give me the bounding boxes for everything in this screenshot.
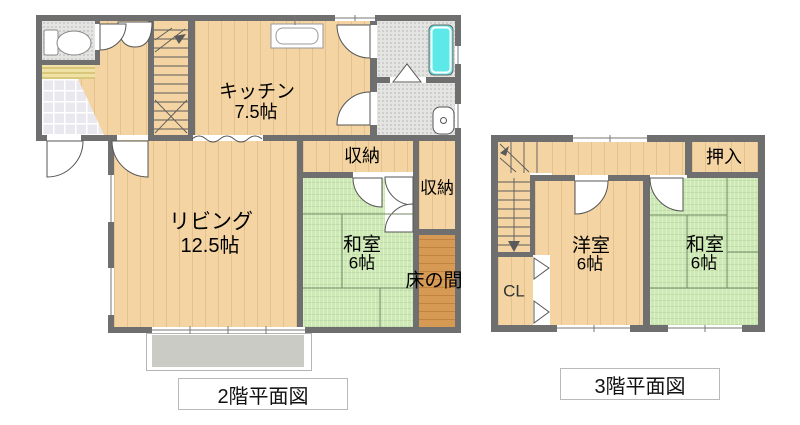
door-opening <box>575 175 608 181</box>
door-opening <box>370 92 377 125</box>
washitsu-2f-size: 6帖 <box>349 255 375 272</box>
closet-door-strip <box>533 255 550 325</box>
wall <box>530 181 535 252</box>
storage-top-label: 収納 <box>344 147 380 165</box>
wall <box>263 135 461 141</box>
window <box>152 327 305 333</box>
door-opening <box>370 25 377 58</box>
washitsu-2f-label: 和室 <box>343 236 381 255</box>
closet-label: CL <box>503 283 525 300</box>
washitsu-3f-size: 6帖 <box>691 255 717 272</box>
living-label: リビング <box>169 212 253 233</box>
wall <box>413 140 419 232</box>
staircase-2f <box>154 21 188 135</box>
wall <box>303 172 353 178</box>
living-size: 12.5帖 <box>181 236 240 256</box>
wall <box>188 21 195 135</box>
wall <box>148 135 193 141</box>
floor2-caption-text: 2階平面図 <box>217 380 308 409</box>
western-room-size: 6帖 <box>577 256 603 273</box>
kitchen-floor <box>195 21 370 135</box>
window <box>335 15 375 21</box>
bath-mat <box>42 64 95 79</box>
wall <box>36 135 47 141</box>
wall <box>643 175 650 325</box>
bathroom-floor <box>377 21 455 77</box>
wall <box>758 135 765 332</box>
wall <box>491 135 498 332</box>
window <box>455 104 461 128</box>
wall <box>36 15 42 141</box>
floor-plan-page: キッチン 7.5帖 リビング 12.5帖 収納 収納 和室 6帖 床の間 洋室 … <box>0 0 800 425</box>
floor3-caption: 3階平面図 <box>560 368 720 400</box>
wall <box>297 135 303 333</box>
storage-side-label: 収納 <box>420 180 454 197</box>
window <box>668 325 742 332</box>
balcony-floor <box>152 335 304 367</box>
double-door-notch <box>385 172 413 232</box>
staircase-3f-landing <box>498 142 552 173</box>
floor2-caption: 2階平面図 <box>178 378 348 410</box>
staircase-3f-run <box>498 173 530 253</box>
wall <box>687 172 758 178</box>
window <box>557 325 630 332</box>
window <box>573 135 647 142</box>
wall <box>491 252 535 257</box>
kitchen-size: 7.5帖 <box>234 103 277 121</box>
wall <box>685 142 692 175</box>
door-opening <box>390 77 426 83</box>
wall <box>81 135 117 141</box>
wall <box>413 229 461 235</box>
toilet-room-floor <box>42 21 95 60</box>
living-floor <box>114 140 297 327</box>
lavatory-floor <box>377 83 455 135</box>
kitchen-label: キッチン <box>219 83 295 102</box>
window <box>108 268 114 315</box>
tokonoma-label: 床の間 <box>405 272 462 291</box>
oshiire-label: 押入 <box>706 148 742 166</box>
washitsu-3f-label: 和室 <box>686 236 724 255</box>
wall <box>148 21 154 135</box>
door-arc <box>47 141 83 177</box>
wall <box>36 60 100 65</box>
door-opening <box>95 24 100 50</box>
hallway-floor-3f <box>552 142 692 175</box>
western-room-label: 洋室 <box>572 237 610 256</box>
window <box>108 175 114 222</box>
window <box>455 46 461 64</box>
floor3-caption-text: 3階平面図 <box>594 370 685 399</box>
